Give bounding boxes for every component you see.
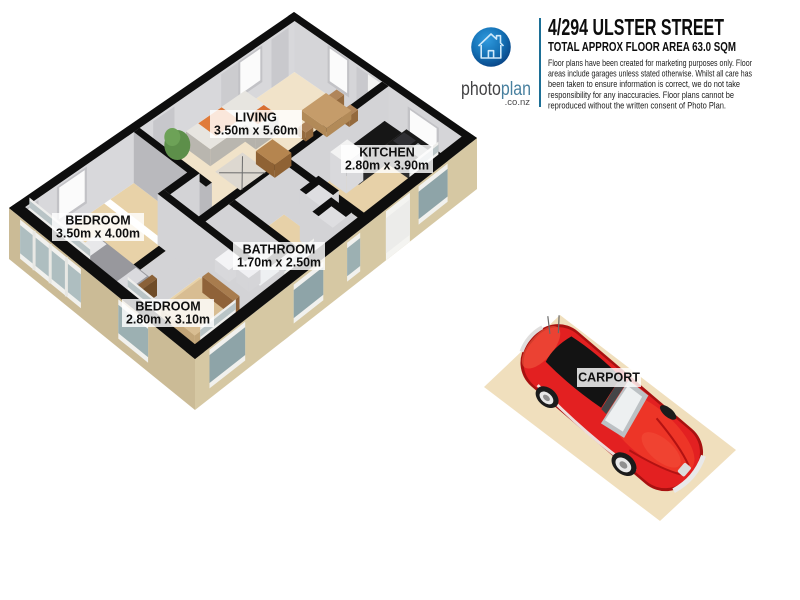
svg-text:4/294 ULSTER STREET: 4/294 ULSTER STREET <box>548 14 724 40</box>
svg-text:BEDROOM: BEDROOM <box>135 300 200 314</box>
svg-text:KITCHEN: KITCHEN <box>359 146 415 160</box>
svg-text:3.50m x 4.00m: 3.50m x 4.00m <box>56 227 140 241</box>
svg-text:areas include garages unless s: areas include garages unless stated othe… <box>548 69 752 79</box>
svg-text:BATHROOM: BATHROOM <box>243 243 316 257</box>
svg-text:1.70m x 2.50m: 1.70m x 2.50m <box>237 256 321 270</box>
svg-text:3.50m x 5.60m: 3.50m x 5.60m <box>214 124 298 138</box>
svg-text:.co.nz: .co.nz <box>505 97 531 108</box>
svg-text:reproduced without the written: reproduced without the written consent o… <box>548 100 726 110</box>
svg-text:LIVING: LIVING <box>235 111 277 125</box>
svg-text:2.80m x 3.90m: 2.80m x 3.90m <box>345 159 429 173</box>
svg-text:2.80m x 3.10m: 2.80m x 3.10m <box>126 313 210 327</box>
svg-text:CARPORT: CARPORT <box>578 371 640 385</box>
svg-text:TOTAL APPROX FLOOR AREA 63.0 S: TOTAL APPROX FLOOR AREA 63.0 SQM <box>548 39 736 54</box>
svg-text:responsibility for any inaccur: responsibility for any inaccuracies. Flo… <box>548 90 734 100</box>
svg-text:BEDROOM: BEDROOM <box>65 214 130 228</box>
svg-text:been taken to ensure informati: been taken to ensure information is corr… <box>548 79 740 89</box>
svg-text:Floor plans have been created: Floor plans have been created for market… <box>548 58 752 68</box>
